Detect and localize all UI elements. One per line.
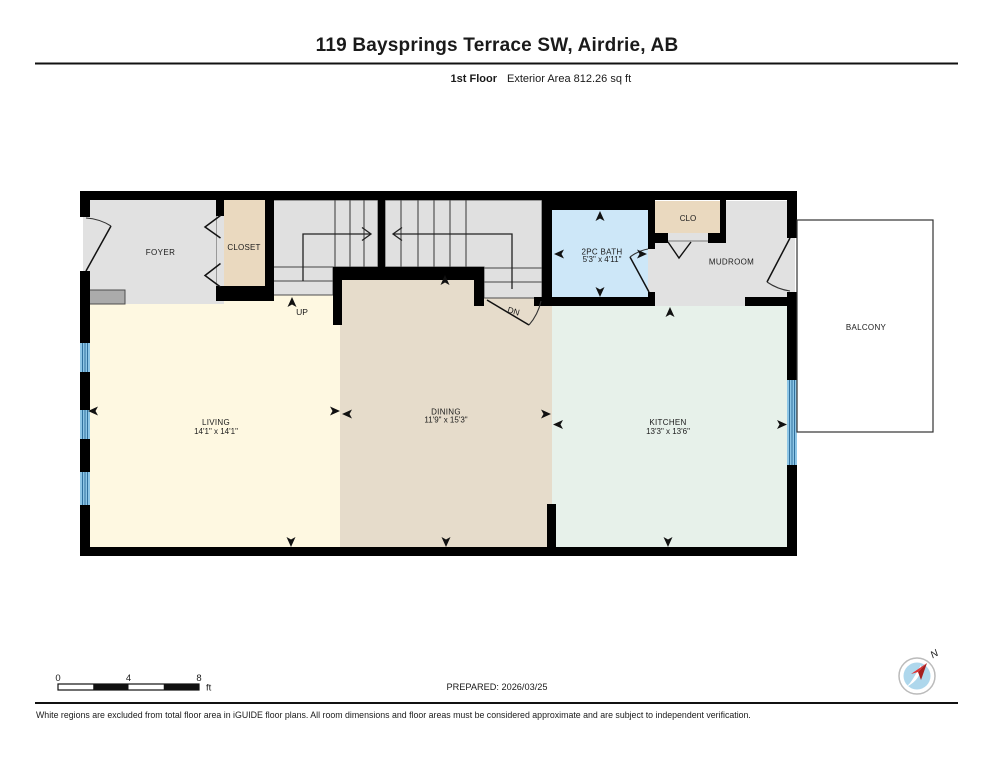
svg-text:White regions are excluded fro: White regions are excluded from total fl… [36,710,751,720]
svg-text:0: 0 [55,673,60,684]
svg-text:CLOSET: CLOSET [227,243,260,252]
svg-text:1st Floor: 1st Floor [451,73,498,85]
svg-text:KITCHEN: KITCHEN [649,418,686,427]
svg-text:MUDROOM: MUDROOM [709,258,754,267]
svg-text:8: 8 [196,673,201,684]
svg-text:CLO: CLO [680,214,696,223]
svg-text:LIVING: LIVING [202,418,230,427]
svg-text:5'3" x 4'11": 5'3" x 4'11" [583,255,622,264]
svg-text:11'9" x 15'3": 11'9" x 15'3" [424,416,467,425]
svg-text:PREPARED: 2026/03/25: PREPARED: 2026/03/25 [447,682,548,692]
svg-text:Exterior Area 812.26 sq ft: Exterior Area 812.26 sq ft [507,73,631,85]
svg-text:BALCONY: BALCONY [846,323,887,332]
svg-text:FOYER: FOYER [146,248,176,257]
svg-text:4: 4 [126,673,131,684]
svg-text:UP: UP [296,307,308,317]
svg-text:14'1" x 14'1": 14'1" x 14'1" [194,427,238,436]
svg-text:119 Baysprings Terrace SW, Air: 119 Baysprings Terrace SW, Airdrie, AB [316,35,679,56]
svg-text:ft: ft [206,683,212,694]
svg-text:13'3" x 13'6": 13'3" x 13'6" [646,427,690,436]
